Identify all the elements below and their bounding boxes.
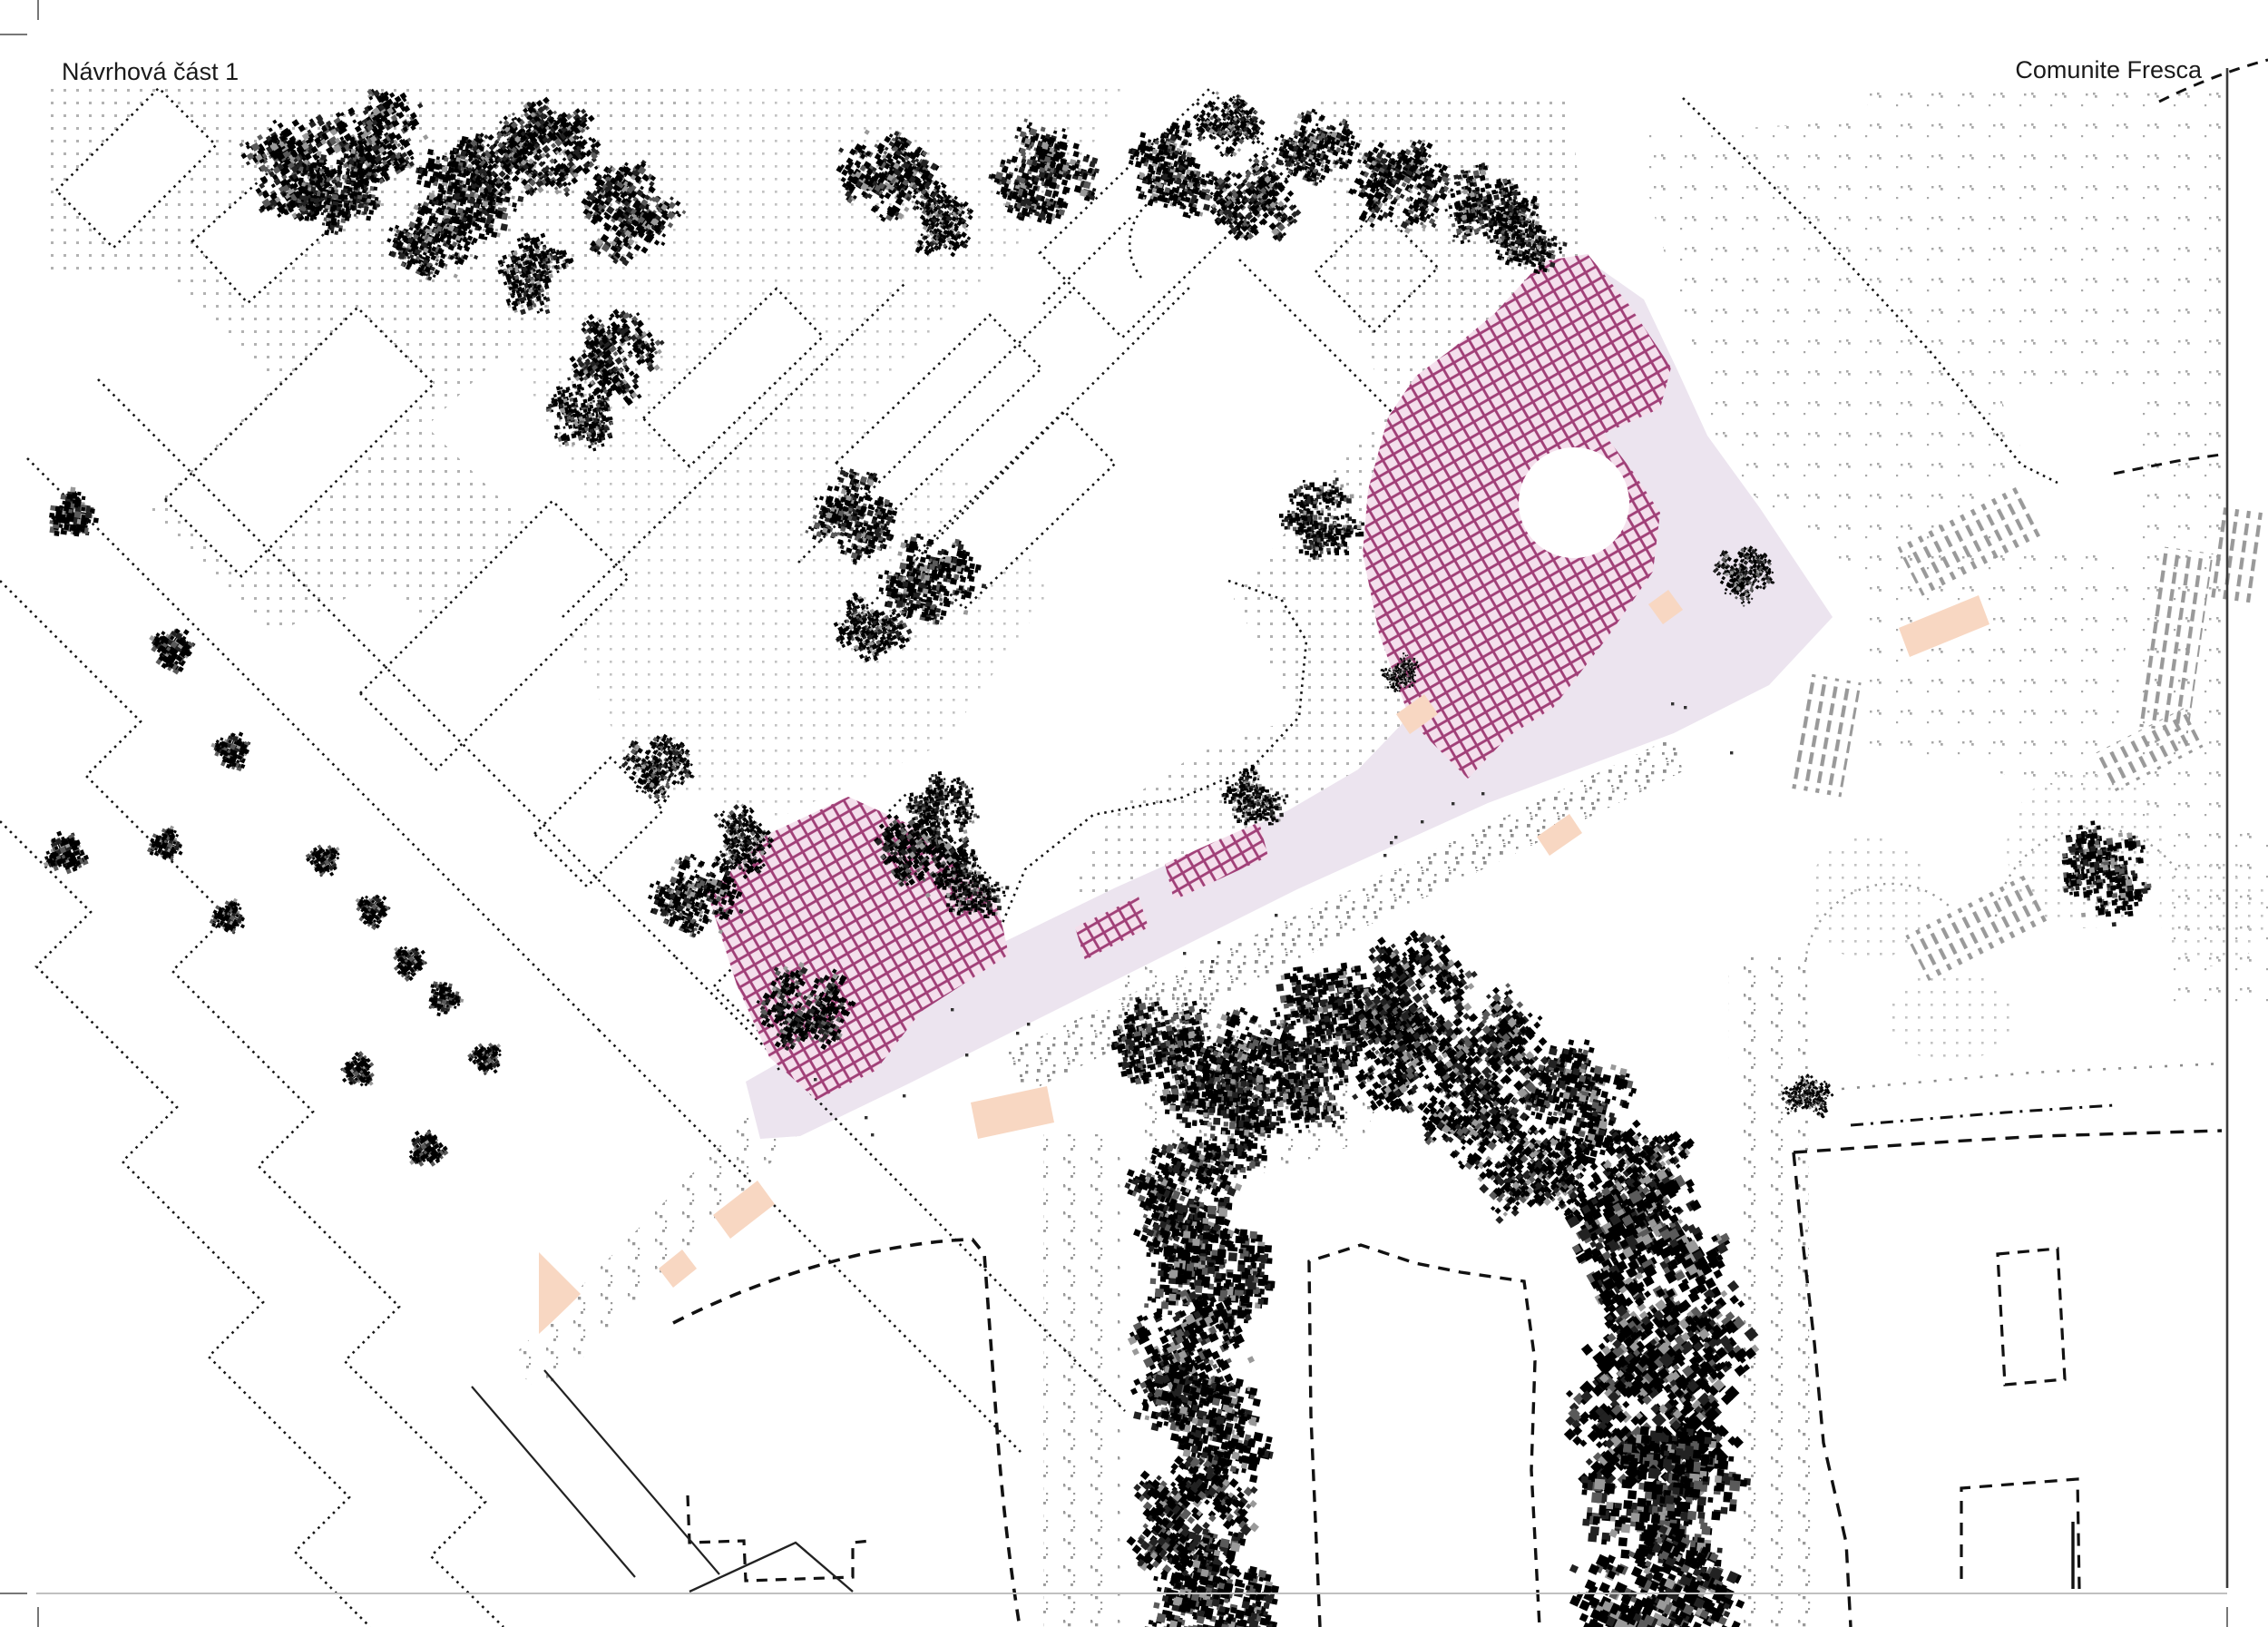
svg-text:Návrhová část 1: Návrhová část 1	[62, 58, 239, 85]
svg-text:Comunite Fresca: Comunite Fresca	[2015, 56, 2203, 83]
